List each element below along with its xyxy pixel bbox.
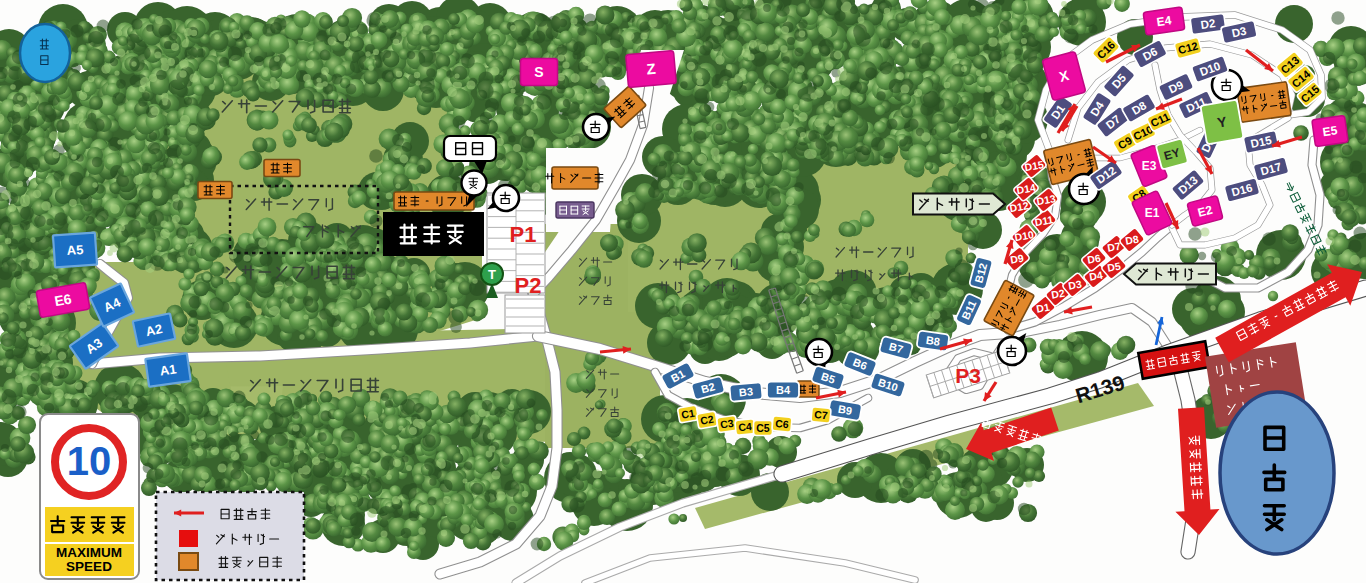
svg-text:B4: B4 <box>776 384 791 396</box>
svg-text:E3: E3 <box>1142 159 1157 173</box>
svg-text:C6: C6 <box>775 417 790 430</box>
svg-text:D8: D8 <box>1124 233 1139 247</box>
svg-text:C2: C2 <box>699 413 714 427</box>
svg-text:D3: D3 <box>1067 278 1082 292</box>
svg-text:SPEED: SPEED <box>66 559 112 574</box>
svg-text:E4: E4 <box>1156 13 1173 29</box>
svg-text:B9: B9 <box>837 403 853 417</box>
svg-text:S: S <box>534 64 543 80</box>
svg-text:D2: D2 <box>1050 287 1065 301</box>
svg-text:T: T <box>488 267 496 282</box>
svg-text:E6: E6 <box>53 290 73 309</box>
svg-text:B3: B3 <box>738 385 753 398</box>
svg-text:C7: C7 <box>814 408 829 421</box>
svg-text:MAXIMUM: MAXIMUM <box>56 545 122 560</box>
svg-text:B8: B8 <box>925 334 941 348</box>
svg-text:Z: Z <box>646 60 657 78</box>
svg-text:D1: D1 <box>1035 301 1050 315</box>
svg-text:C4: C4 <box>738 420 753 433</box>
svg-text:D9: D9 <box>1009 252 1024 266</box>
svg-text:D6: D6 <box>1086 252 1101 266</box>
svg-text:P3: P3 <box>955 364 981 387</box>
svg-text:E5: E5 <box>1322 123 1339 139</box>
svg-text:E1: E1 <box>1145 206 1160 220</box>
svg-text:C1: C1 <box>680 407 695 421</box>
svg-text:A5: A5 <box>66 242 84 258</box>
svg-text:P2: P2 <box>515 273 542 298</box>
svg-text:D2: D2 <box>1200 17 1216 31</box>
svg-text:C5: C5 <box>756 422 770 434</box>
svg-text:D5: D5 <box>1106 260 1121 274</box>
svg-text:P1: P1 <box>510 222 537 247</box>
svg-text:C3: C3 <box>719 417 734 431</box>
svg-text:10: 10 <box>67 439 112 483</box>
svg-text:A1: A1 <box>159 361 178 378</box>
